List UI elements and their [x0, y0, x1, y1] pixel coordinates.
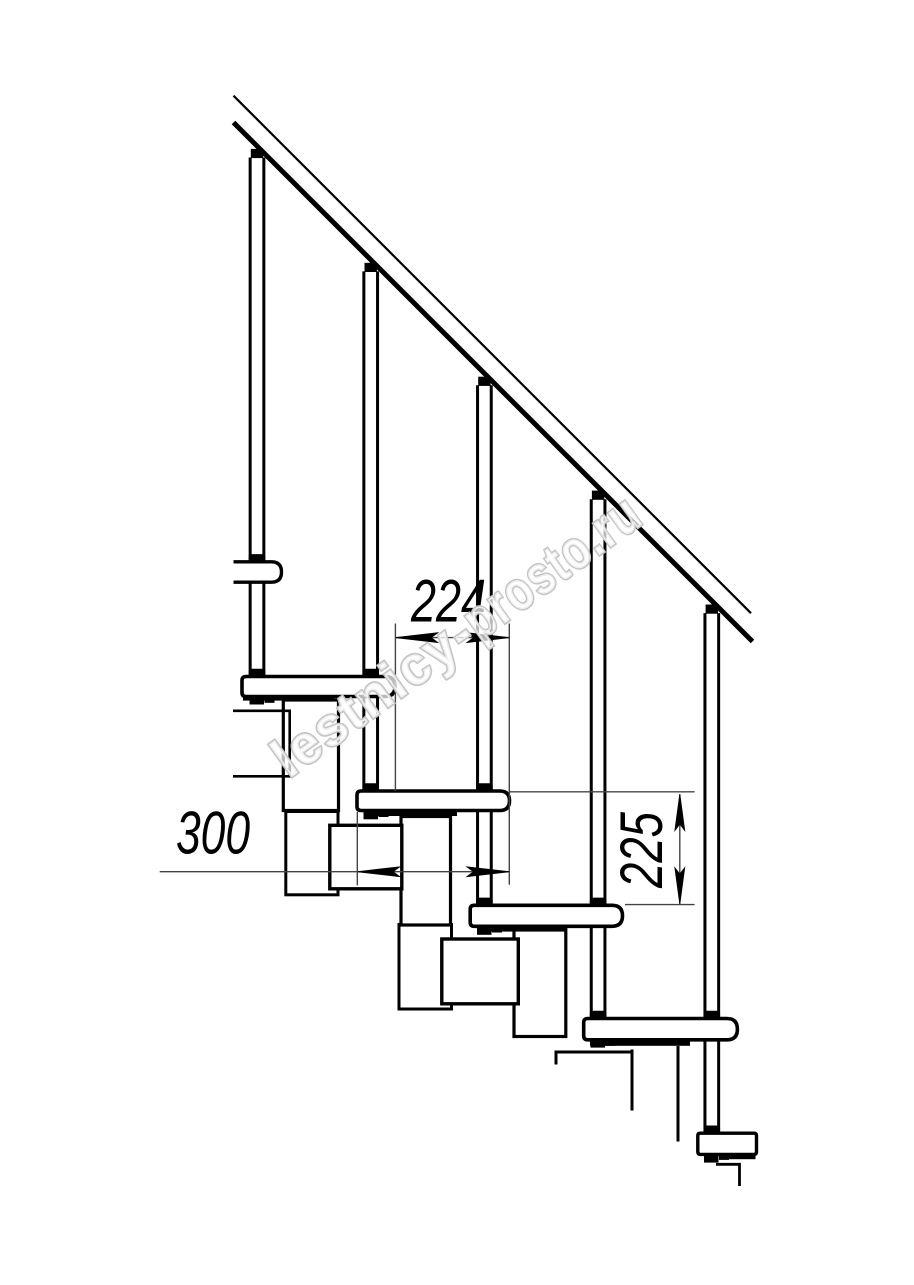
svg-text:225: 225 [608, 812, 675, 889]
svg-text:300: 300 [176, 800, 250, 867]
